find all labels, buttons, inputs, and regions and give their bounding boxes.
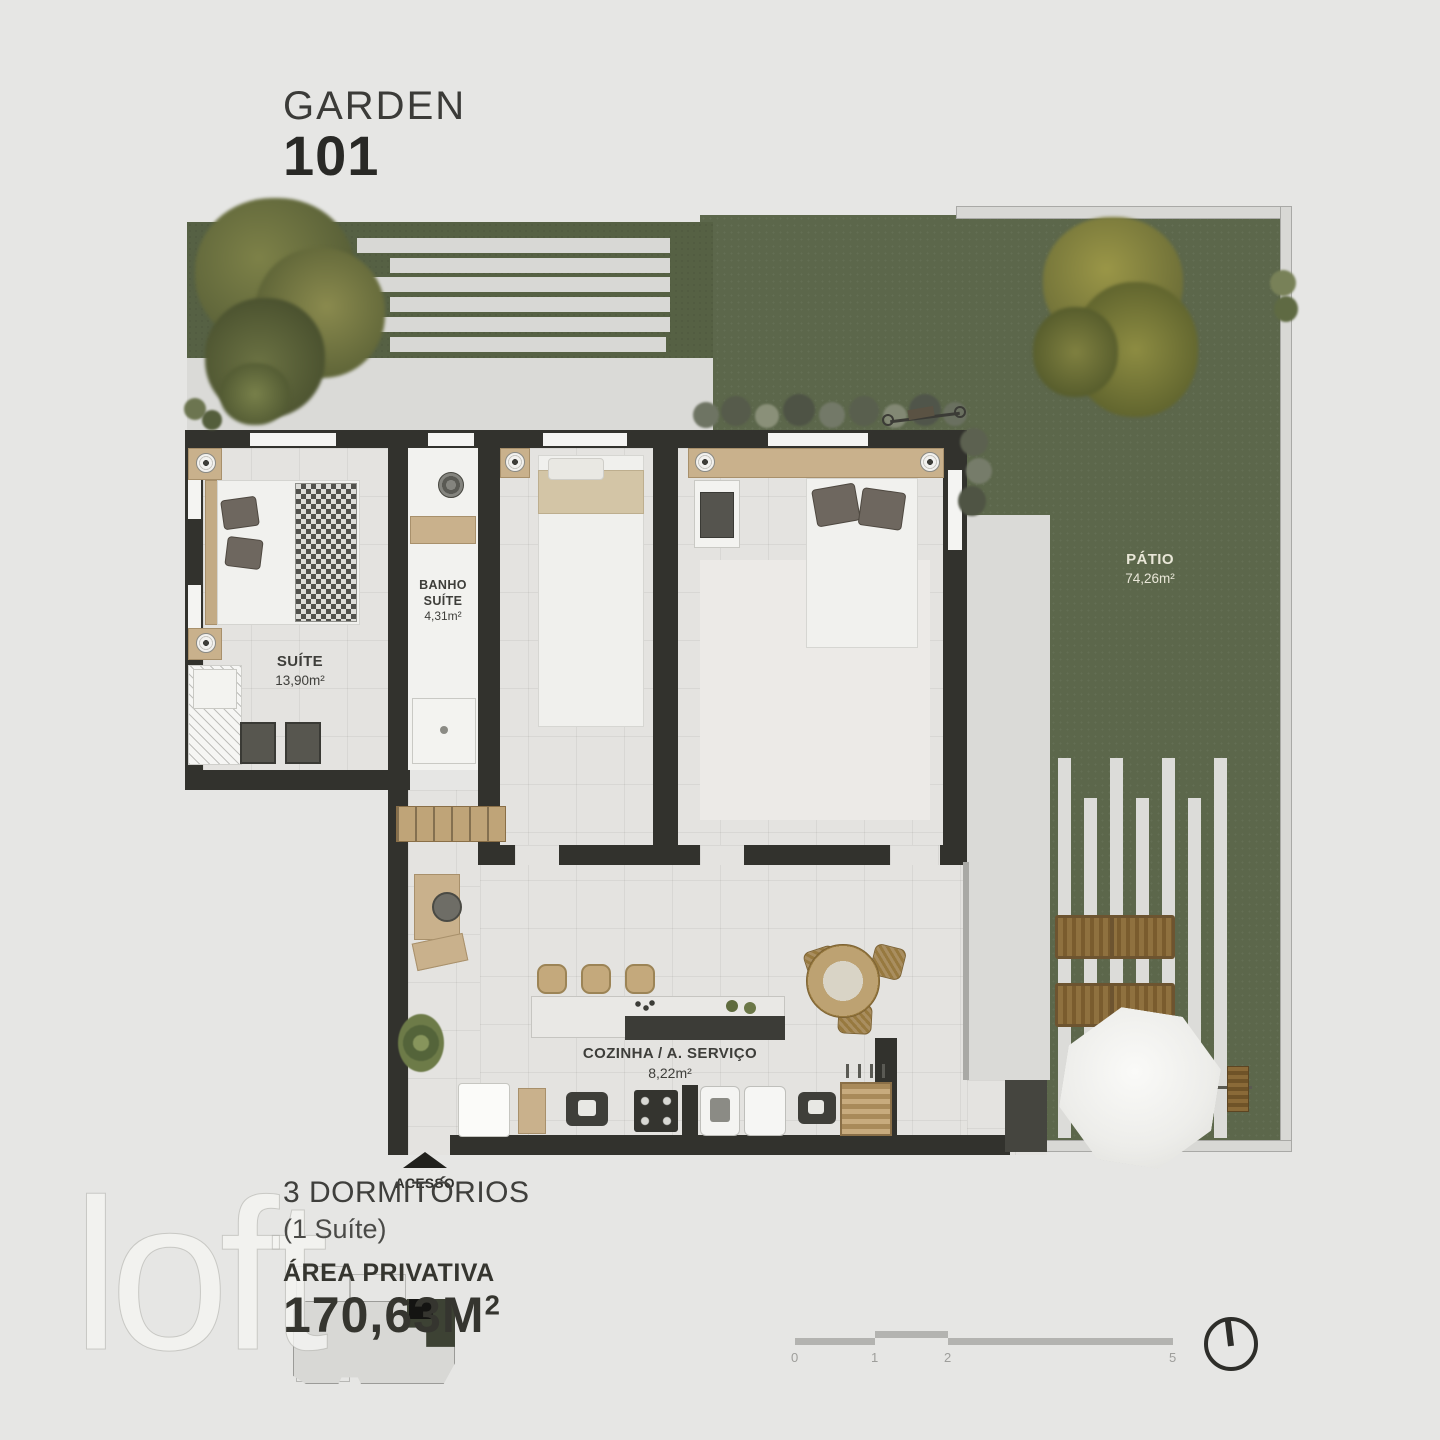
room-label-suite: SUÍTE 13,90m² <box>240 652 360 689</box>
lamp-icon <box>695 452 715 472</box>
summary-bedrooms: 3 DORMITÓRIOS <box>283 1176 643 1210</box>
wall-bottom <box>450 1135 1010 1155</box>
bicycle-icon <box>878 396 978 432</box>
counter-utensils <box>634 1000 656 1014</box>
bath-vanity <box>410 516 476 544</box>
deck-stripe <box>357 238 670 253</box>
scale-segment <box>795 1338 875 1345</box>
area-number: 170,63M <box>283 1287 485 1343</box>
area-superscript: 2 <box>485 1289 501 1320</box>
room-label-cozinha: COZINHA / A. SERVIÇO 8,22m² <box>570 1044 770 1082</box>
access-arrow-icon <box>403 1152 447 1168</box>
room-area: 74,26m² <box>1080 570 1220 588</box>
summary-block: 3 DORMITÓRIOS (1 Suíte) ÁREA PRIVATIVA 1… <box>283 1176 643 1344</box>
window-dorm2-top <box>543 433 627 446</box>
room-name: BANHO SUÍTE <box>406 578 480 609</box>
scale-tick-label: 1 <box>871 1350 878 1365</box>
lamp-icon <box>196 633 216 653</box>
stool <box>537 964 567 994</box>
scale-segment <box>948 1338 1173 1345</box>
shrub-cluster <box>1268 268 1302 332</box>
scale-segment <box>875 1331 948 1338</box>
dryer <box>744 1086 786 1136</box>
room-area: 4,31m² <box>406 609 480 625</box>
patio-paved-strip <box>967 515 1050 1080</box>
sink-basin <box>578 1100 596 1116</box>
counter-plant-icon <box>744 1002 756 1014</box>
room-label-banho-suite: BANHO SUÍTE 4,31m² <box>406 578 480 625</box>
lamp-icon <box>505 452 525 472</box>
desk-chair <box>432 892 462 922</box>
utility-rack <box>840 1082 892 1136</box>
door-gap-dorm2 <box>515 845 559 865</box>
pillow <box>858 487 907 531</box>
unit-number: 101 <box>283 123 466 188</box>
stool <box>581 964 611 994</box>
dorm2-pillow <box>548 458 604 480</box>
glass-wall-east <box>963 862 969 1080</box>
scale-tick-label: 0 <box>791 1350 798 1365</box>
deck-stripe <box>390 337 666 352</box>
door-gap-dorm3 <box>700 845 744 865</box>
room-area: 8,22m² <box>570 1064 770 1082</box>
plant-icon <box>398 1014 444 1072</box>
tv-icon <box>700 492 734 538</box>
summary-area-value: 170,63M2 <box>283 1286 643 1344</box>
summary-suite-note: (1 Suíte) <box>283 1214 643 1245</box>
room-name: SUÍTE <box>240 652 360 672</box>
deck-stripe <box>357 317 670 332</box>
suite-cabinet <box>240 722 276 764</box>
shower-drain <box>440 726 448 734</box>
kitchen-shelf <box>518 1088 546 1134</box>
stool <box>625 964 655 994</box>
washer-door <box>710 1098 730 1122</box>
pillow <box>220 496 260 531</box>
counter-plant-icon <box>726 1000 738 1012</box>
pillow <box>811 482 861 527</box>
dining-table <box>806 944 880 1018</box>
room-name: PÁTIO <box>1080 550 1220 570</box>
window-suite-top <box>250 433 336 446</box>
watermark-logo: loft <box>72 1178 319 1372</box>
floor-plan-page: GARDEN 101 <box>0 0 1440 1440</box>
kitchen-counter-dark <box>625 1016 785 1040</box>
room-name: COZINHA / A. SERVIÇO <box>570 1044 770 1064</box>
room-area: 13,90m² <box>240 672 360 690</box>
wall-suite-bath <box>388 448 408 770</box>
deck-stripe <box>390 258 670 273</box>
tree <box>1028 212 1208 432</box>
shrub-cluster <box>182 392 226 438</box>
utility-pipes <box>846 1064 888 1078</box>
scale-tick-label: 5 <box>1169 1350 1176 1365</box>
lamp-icon <box>920 452 940 472</box>
wall-bath-right <box>478 448 500 848</box>
wall-corner-block <box>1005 1080 1047 1152</box>
fridge <box>458 1083 510 1137</box>
sideboard <box>396 806 506 842</box>
sink-basin <box>808 1100 824 1114</box>
window-bath-top <box>428 433 474 446</box>
scale-tick-label: 2 <box>944 1350 951 1365</box>
room-label-patio: PÁTIO 74,26m² <box>1080 550 1220 587</box>
suite-bed-blanket <box>295 483 357 622</box>
wall-dorm2-dorm3 <box>653 448 678 848</box>
wall-suite-bottom <box>185 770 410 790</box>
summary-area-label: ÁREA PRIVATIVA <box>283 1259 643 1288</box>
lounge-chair <box>1055 915 1175 959</box>
deck-stripe <box>357 277 670 292</box>
page-title: GARDEN 101 <box>283 84 466 188</box>
door-gap-patio <box>890 845 940 865</box>
suite-shelf <box>193 669 237 709</box>
patio-side-table <box>1227 1066 1249 1112</box>
lamp-icon <box>196 453 216 473</box>
suite-cabinet <box>285 722 321 764</box>
shrub-column <box>952 428 1000 524</box>
bath-sink <box>438 472 464 498</box>
scale-bar: 0 1 2 5 <box>780 1310 1200 1370</box>
pillow <box>224 536 263 570</box>
deck-stripe <box>390 297 670 312</box>
wall-living-west <box>388 790 408 1155</box>
wall-stub <box>682 1085 698 1135</box>
stove-icon <box>634 1090 678 1132</box>
dorm3-headboard-band <box>688 448 944 478</box>
boundary-wall-right <box>1280 206 1292 1152</box>
